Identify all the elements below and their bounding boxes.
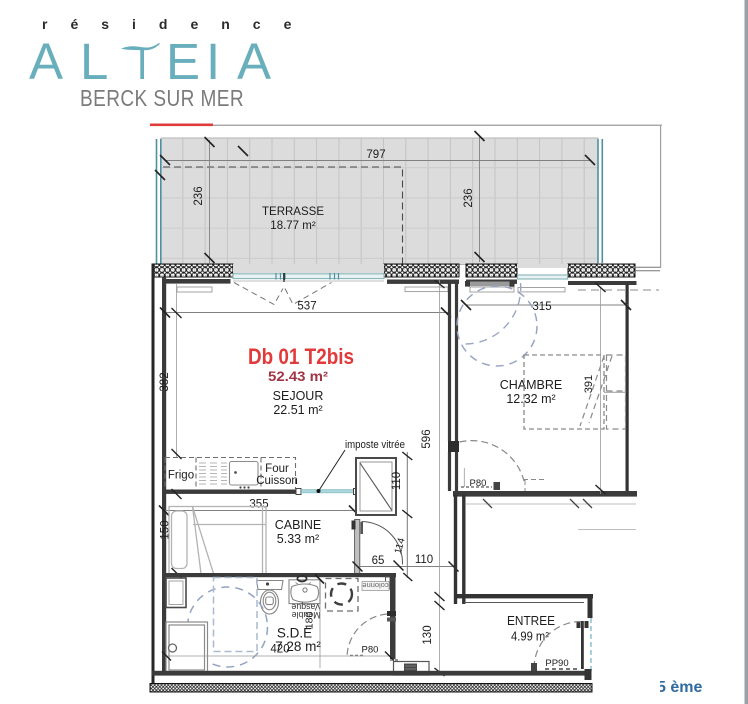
svg-text:P80: P80 [362,645,379,656]
svg-text:CABINE: CABINE [275,518,322,532]
svg-text:236: 236 [193,186,205,205]
svg-text:130: 130 [422,625,434,644]
svg-text:150: 150 [160,520,172,539]
svg-text:SEJOUR: SEJOUR [273,389,324,403]
svg-text:résidence: résidence [42,16,314,32]
svg-text:18.77 m²: 18.77 m² [270,220,316,232]
svg-text:L: L [80,33,108,90]
svg-text:420: 420 [270,644,289,656]
svg-text:5 ème: 5 ème [657,679,702,696]
svg-text:PP90: PP90 [545,658,568,669]
svg-text:colonne: colonne [362,581,388,590]
svg-text:ENTREE: ENTREE [507,614,555,628]
svg-text:382: 382 [159,372,171,391]
svg-text:5.33 m²: 5.33 m² [277,532,319,546]
svg-text:52.43 m²: 52.43 m² [268,368,328,384]
svg-text:BERCK SUR MER: BERCK SUR MER [80,85,244,111]
svg-text:Db 01 T2bis: Db 01 T2bis [248,344,354,369]
svg-text:A: A [29,33,63,90]
svg-text:537: 537 [297,301,316,313]
svg-text:TERRASSE: TERRASSE [262,206,324,218]
svg-text:Frigo: Frigo [168,470,194,482]
svg-text:CHAMBRE: CHAMBRE [500,378,563,392]
svg-text:596: 596 [421,429,433,448]
svg-text:236: 236 [463,188,475,207]
svg-text:110: 110 [391,472,403,490]
svg-text:I: I [206,33,220,90]
svg-text:391: 391 [583,375,595,393]
svg-text:Four: Four [265,463,289,475]
svg-text:Cuisson: Cuisson [256,475,298,487]
svg-text:110: 110 [415,554,433,566]
svg-text:A: A [237,33,271,90]
svg-text:22.51 m²: 22.51 m² [273,403,322,417]
svg-text:E: E [166,33,200,90]
svg-text:imposte vitrée: imposte vitrée [345,439,405,451]
svg-text:797: 797 [366,149,385,161]
svg-text:12.32 m²: 12.32 m² [506,392,555,406]
svg-text:65: 65 [372,555,385,567]
svg-text:315: 315 [532,301,551,313]
